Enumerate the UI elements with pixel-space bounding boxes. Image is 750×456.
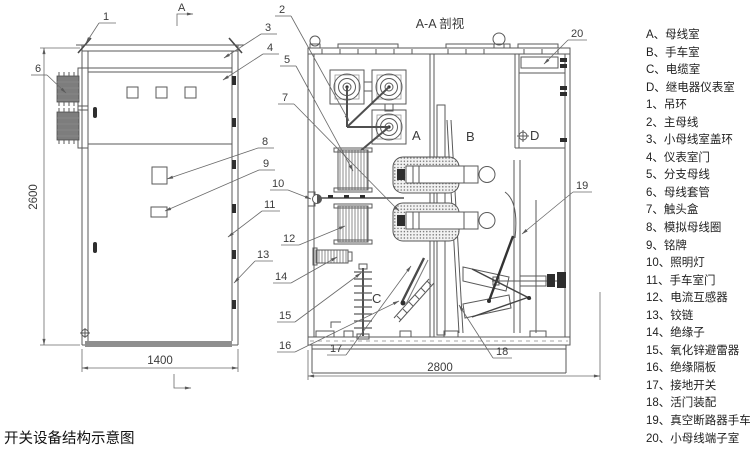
svg-text:9: 9 xyxy=(263,158,269,170)
callout-10: 10 xyxy=(270,178,311,199)
lifting-ring xyxy=(310,36,320,48)
svg-text:6: 6 xyxy=(35,63,41,75)
drawing-title: 开关设备结构示意图 xyxy=(4,427,135,448)
section-arrow-top xyxy=(177,14,193,26)
legend-item: 12、电流互感器 xyxy=(646,290,750,308)
front-view: A 2600 1400 xyxy=(28,2,244,388)
legend-item: C、电缆室 xyxy=(646,62,750,80)
compartment-c-label: C xyxy=(372,291,381,306)
engineering-drawing: A 2600 1400 A-A 剖视 xyxy=(0,0,645,456)
section-marker-top: A xyxy=(178,2,186,14)
legend-item: 9、铭牌 xyxy=(646,238,750,256)
legend-item: 19、真空断路器手车 xyxy=(646,413,750,431)
floor-bracket xyxy=(331,322,341,328)
support-insulator xyxy=(313,248,352,265)
legend-item: 11、手车室门 xyxy=(646,273,750,291)
hinge-tabs xyxy=(232,76,236,309)
lifting-ring xyxy=(493,33,505,48)
legend-item: 7、触头盒 xyxy=(646,202,750,220)
legend-item: 3、小母线室盖环 xyxy=(646,132,750,150)
door-knob xyxy=(93,242,97,253)
grounding-switch xyxy=(401,258,429,306)
breaker-pole-lower xyxy=(406,212,478,229)
shutter-linkage xyxy=(463,236,531,318)
dimension-section-depth: 2800 xyxy=(308,292,600,380)
legend-item: 14、绝缘子 xyxy=(646,325,750,343)
legend-item: 4、仪表室门 xyxy=(646,150,750,168)
nameplate xyxy=(151,207,167,217)
svg-text:13: 13 xyxy=(257,249,269,261)
zinc-oxide-arrester xyxy=(354,264,372,339)
main-busbar-runs xyxy=(347,87,389,158)
svg-text:2: 2 xyxy=(279,4,285,16)
legend-item: 13、铰链 xyxy=(646,308,750,326)
indicator-window xyxy=(156,87,167,98)
legend-item: 2、主母线 xyxy=(646,115,750,133)
callout-8: 8 xyxy=(167,136,274,179)
svg-text:19: 19 xyxy=(576,180,588,192)
door-knob xyxy=(93,107,97,118)
indicator-window xyxy=(185,87,196,98)
drawing-sheet: A 2600 1400 A-A 剖视 xyxy=(0,0,750,456)
svg-text:15: 15 xyxy=(279,310,291,322)
section-view: A-A 剖视 xyxy=(308,16,600,380)
contact-boxes xyxy=(393,157,495,241)
svg-text:7: 7 xyxy=(282,92,288,104)
svg-text:14: 14 xyxy=(275,271,287,283)
svg-text:18: 18 xyxy=(496,346,508,358)
small-busbar-terminal-room xyxy=(521,57,558,68)
legend-item: 15、氧化锌避雷器 xyxy=(646,343,750,361)
legend-item: 16、绝缘隔板 xyxy=(646,360,750,378)
main-busbar-bushings xyxy=(330,70,406,158)
cabinet-base xyxy=(85,341,232,347)
callout-4: 4 xyxy=(223,42,279,80)
busbar-bushings-side xyxy=(57,68,88,148)
insulation-barrier xyxy=(394,279,434,322)
svg-text:2800: 2800 xyxy=(427,362,453,374)
legend-item: 17、接地开关 xyxy=(646,378,750,396)
callout-12: 12 xyxy=(281,226,345,245)
section-arrow-bottom xyxy=(174,374,191,388)
svg-text:17: 17 xyxy=(330,343,342,355)
svg-text:4: 4 xyxy=(267,42,273,54)
legend-item: A、母线室 xyxy=(646,27,750,45)
legend-item: 6、母线套管 xyxy=(646,185,750,203)
svg-text:2600: 2600 xyxy=(28,184,40,210)
floor-supports xyxy=(316,331,546,337)
legend-item: 8、模拟母线圈 xyxy=(646,220,750,238)
svg-text:16: 16 xyxy=(279,340,291,352)
mimic-busbar-plate xyxy=(152,167,167,184)
section-view-title: A-A 剖视 xyxy=(416,16,465,31)
breaker-pole-upper xyxy=(406,166,478,183)
svg-text:1400: 1400 xyxy=(147,355,173,367)
callout-19: 19 xyxy=(522,180,592,234)
current-transformers xyxy=(334,148,372,244)
legend-item: 5、分支母线 xyxy=(646,167,750,185)
callout-15: 15 xyxy=(277,273,361,322)
legend-item: B、手车室 xyxy=(646,45,750,63)
roof-bolts xyxy=(322,49,558,54)
svg-text:20: 20 xyxy=(571,28,583,40)
svg-text:8: 8 xyxy=(262,136,268,148)
legend: A、母线室 B、手车室 C、电缆室 D、继电器仪表室 1、吊环 2、主母线 3、… xyxy=(646,27,750,448)
svg-text:3: 3 xyxy=(265,22,271,34)
compartment-d-label: D xyxy=(530,128,539,143)
legend-item: D、继电器仪表室 xyxy=(646,80,750,98)
vacuum-breaker-handcart xyxy=(492,160,566,333)
svg-text:5: 5 xyxy=(284,54,290,66)
callout-13: 13 xyxy=(234,249,273,283)
callout-9: 9 xyxy=(165,158,275,211)
svg-text:12: 12 xyxy=(283,233,295,245)
legend-item: 1、吊环 xyxy=(646,97,750,115)
legend-item: 18、活门装配 xyxy=(646,395,750,413)
compartment-b-label: B xyxy=(466,129,475,144)
svg-text:10: 10 xyxy=(272,178,284,190)
legend-item: 20、小母线端子室 xyxy=(646,431,750,449)
svg-text:1: 1 xyxy=(103,11,109,23)
svg-text:11: 11 xyxy=(264,199,275,211)
indicator-window xyxy=(127,87,138,98)
compartment-a-label: A xyxy=(412,128,421,143)
relay-instrument-compartment xyxy=(515,54,567,148)
dimension-front-width: 1400 xyxy=(82,349,238,372)
legend-item: 10、照明灯 xyxy=(646,255,750,273)
